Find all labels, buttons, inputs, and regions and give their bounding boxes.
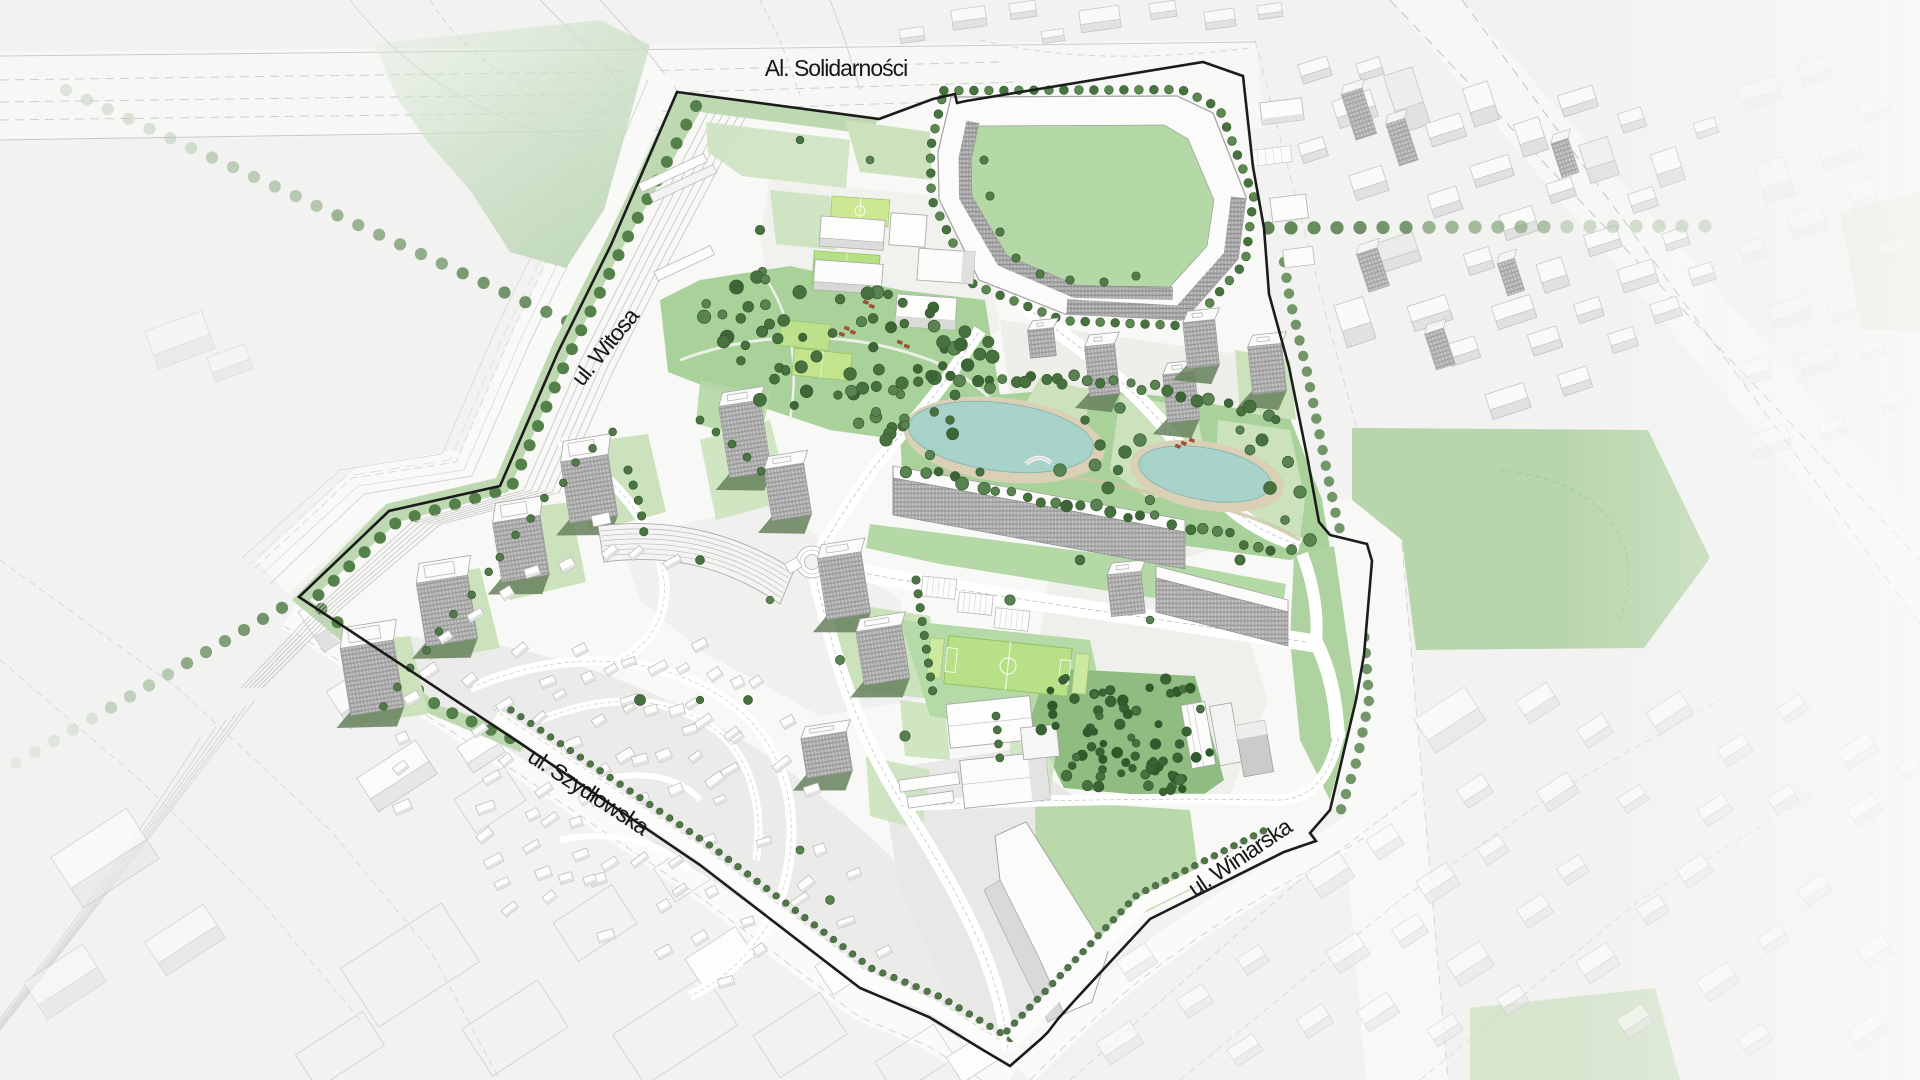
svg-text:Al. Solidarności: Al. Solidarności [765,55,908,81]
